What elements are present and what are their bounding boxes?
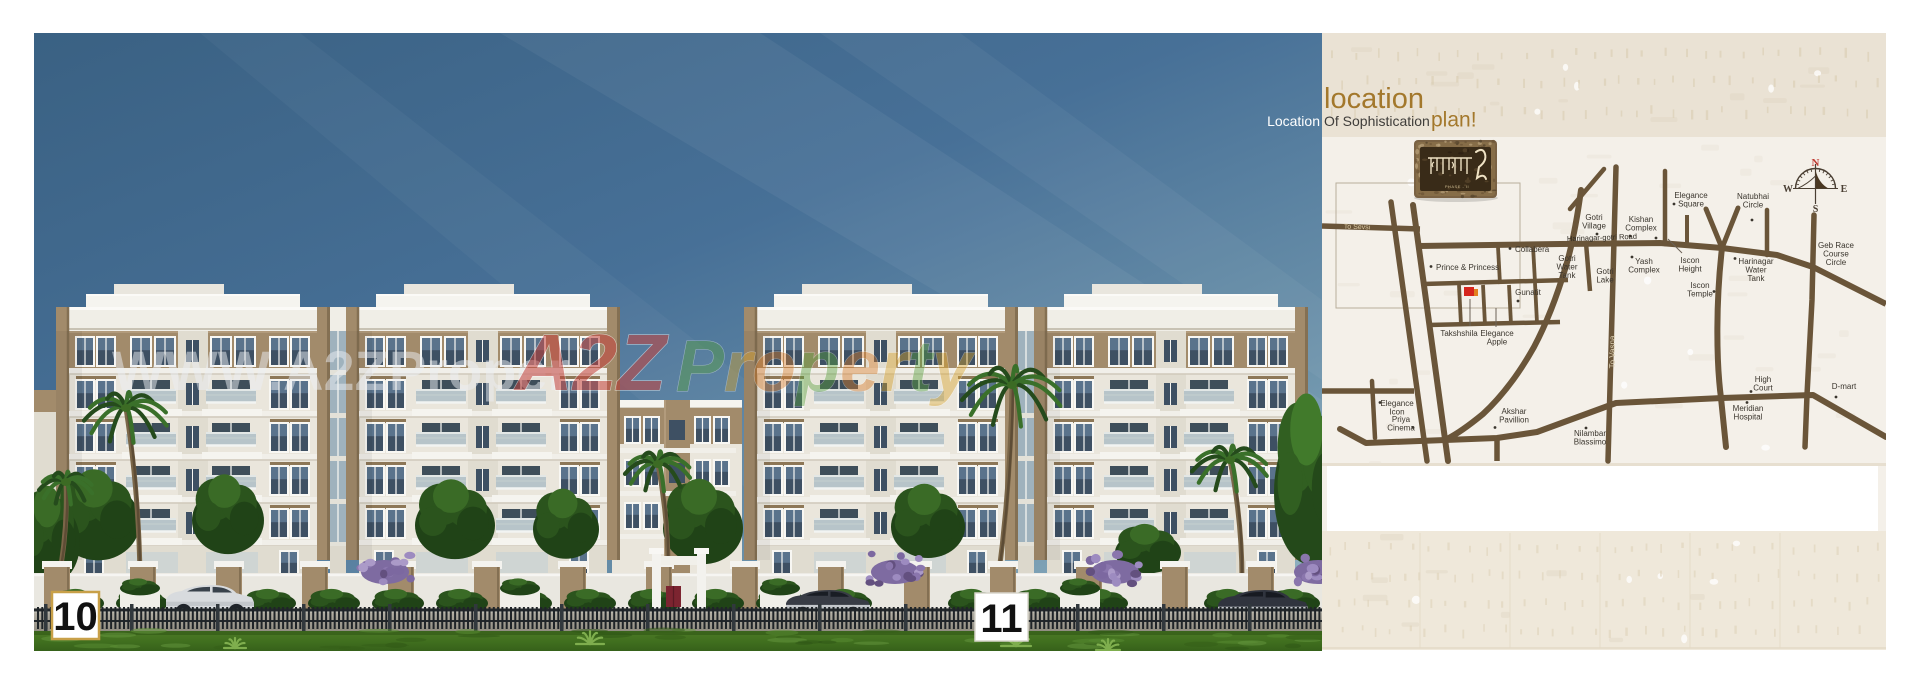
- svg-text:Height: Height: [1678, 265, 1702, 274]
- svg-text:Square: Square: [1678, 200, 1704, 209]
- svg-text:Village: Village: [1582, 222, 1606, 231]
- svg-text:To Vasna: To Vasna: [1608, 335, 1617, 368]
- svg-text:To Sevsi: To Sevsi: [1344, 224, 1371, 232]
- svg-text:10: 10: [53, 595, 98, 639]
- svg-text:A2Z: A2Z: [513, 318, 669, 407]
- svg-text:Tank: Tank: [1559, 271, 1577, 280]
- svg-text:Complex: Complex: [1628, 266, 1660, 275]
- svg-text:Temple: Temple: [1687, 290, 1713, 299]
- svg-text:PHASE - II: PHASE - II: [1445, 184, 1469, 189]
- svg-text:WWW.A2ZProper: WWW.A2ZProper: [112, 339, 569, 402]
- svg-text:Tank: Tank: [1748, 274, 1766, 283]
- svg-text:Apple: Apple: [1487, 338, 1508, 347]
- svg-text:E: E: [1841, 184, 1848, 195]
- svg-text:Blassimo: Blassimo: [1574, 438, 1607, 447]
- svg-text:Court: Court: [1753, 384, 1773, 393]
- svg-text:location: location: [1324, 83, 1424, 115]
- svg-text:S: S: [1813, 204, 1819, 215]
- svg-text:plan!: plan!: [1431, 109, 1477, 132]
- svg-text:D-mart: D-mart: [1832, 382, 1857, 391]
- svg-text:Collabera: Collabera: [1515, 245, 1550, 254]
- svg-text:Lake: Lake: [1596, 276, 1614, 285]
- svg-text:N: N: [1812, 157, 1820, 169]
- svg-text:Gunatit: Gunatit: [1515, 288, 1542, 297]
- svg-text:Property: Property: [676, 327, 976, 407]
- svg-text:Location: Location: [1267, 113, 1320, 129]
- svg-text:Circle: Circle: [1826, 258, 1847, 267]
- svg-text:Takshshila: Takshshila: [1440, 329, 1478, 338]
- svg-text:Hospital: Hospital: [1734, 413, 1763, 422]
- svg-text:11: 11: [980, 597, 1022, 641]
- svg-text:Prince & Princess: Prince & Princess: [1436, 263, 1499, 272]
- svg-text:W: W: [1783, 184, 1793, 195]
- svg-text:Of Sophistication: Of Sophistication: [1324, 113, 1430, 129]
- svg-text:Pavillion: Pavillion: [1499, 416, 1529, 425]
- svg-text:Cinema: Cinema: [1387, 424, 1415, 433]
- svg-text:Circle: Circle: [1743, 201, 1764, 210]
